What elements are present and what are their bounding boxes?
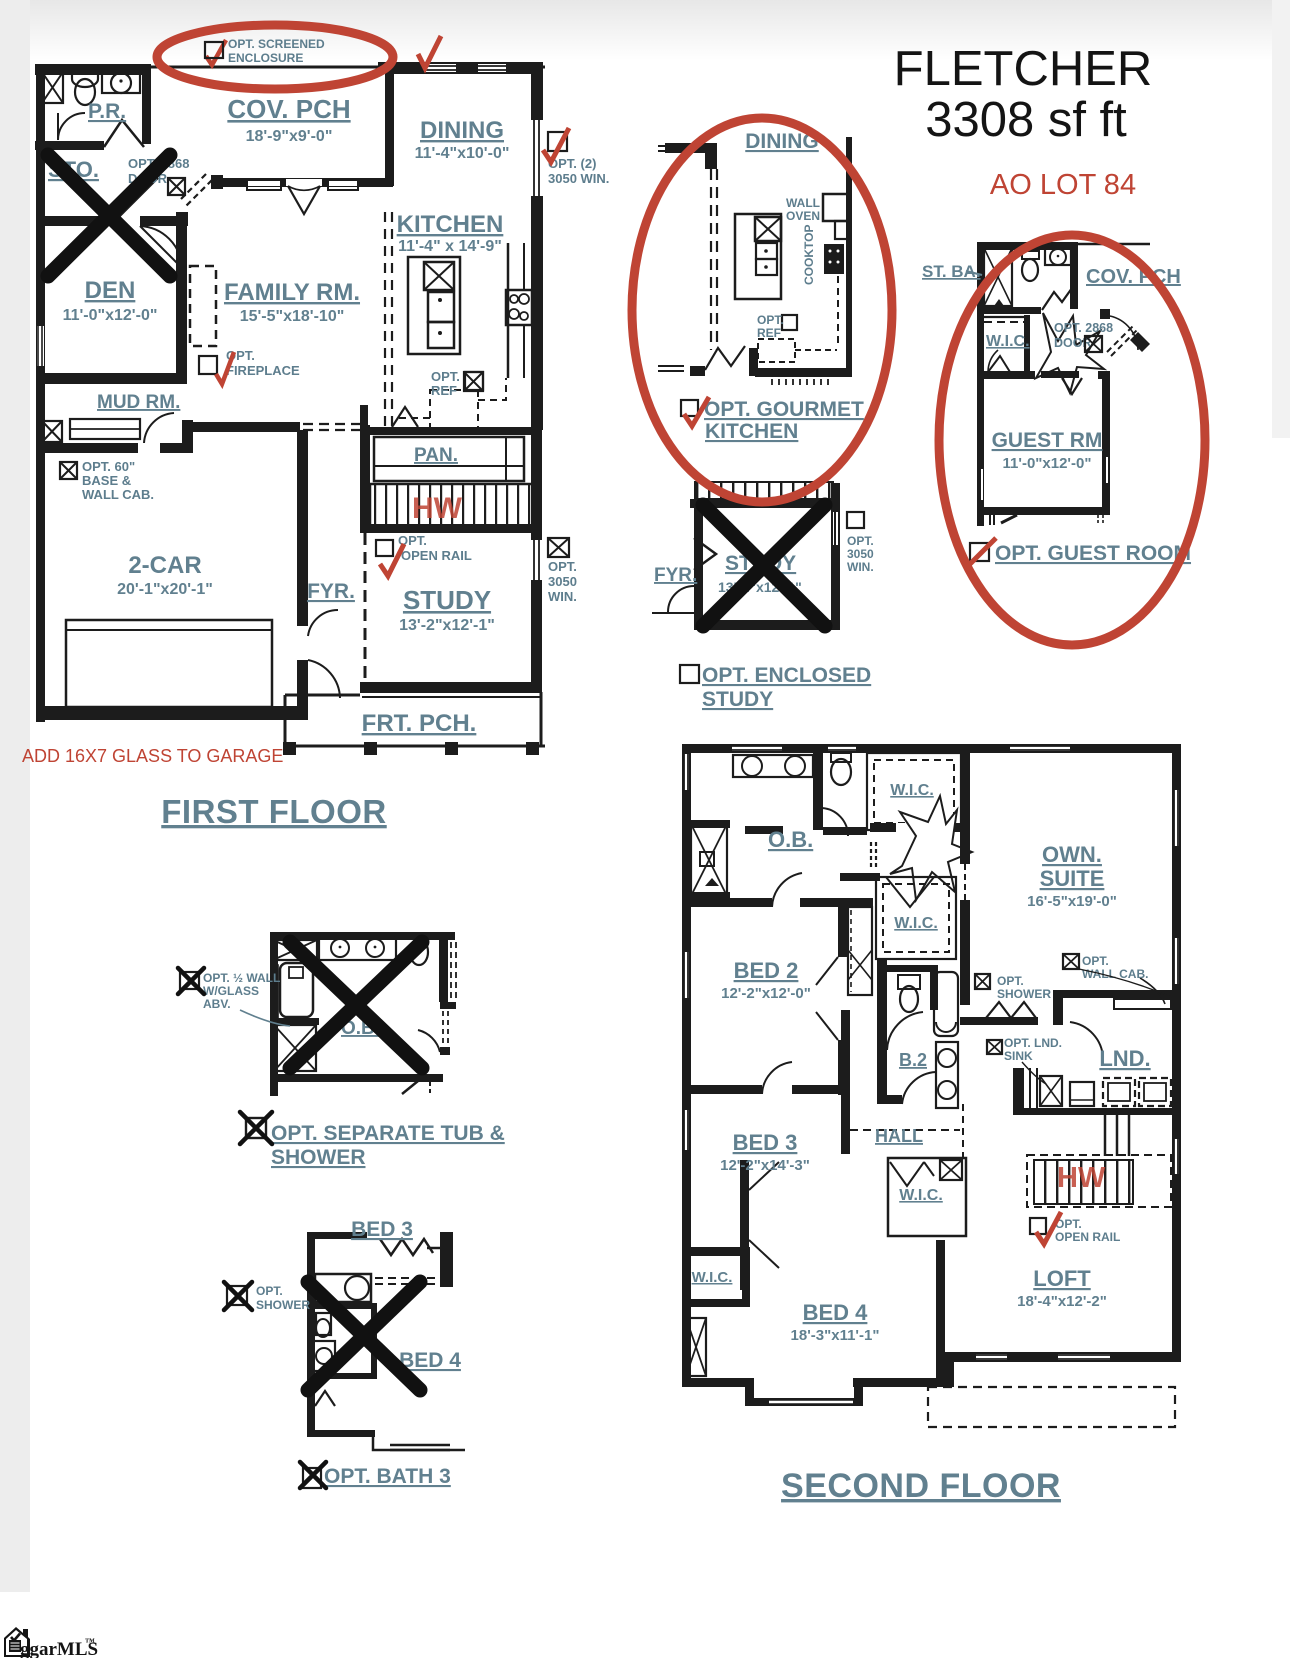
svg-text:DEN: DEN <box>85 277 136 304</box>
svg-text:FYR.: FYR. <box>654 565 697 586</box>
svg-text:W.I.C.: W.I.C. <box>986 333 1030 350</box>
svg-text:REF: REF <box>757 326 781 340</box>
svg-text:COV. PCH: COV. PCH <box>1086 266 1181 288</box>
svg-text:11'-4" x 14'-9": 11'-4" x 14'-9" <box>398 238 502 255</box>
svg-text:OPT.: OPT. <box>1082 954 1109 968</box>
svg-text:OPT. 2868: OPT. 2868 <box>1054 321 1113 335</box>
svg-text:BED 2: BED 2 <box>734 958 799 983</box>
svg-text:SUITE: SUITE <box>1040 866 1105 891</box>
svg-text:STUDY: STUDY <box>702 688 773 711</box>
svg-text:11'-0"x12'-0": 11'-0"x12'-0" <box>1003 455 1092 472</box>
svg-text:SHOWER: SHOWER <box>256 1298 310 1312</box>
svg-text:11'-0"x12'-0": 11'-0"x12'-0" <box>63 307 158 324</box>
svg-text:STUDY: STUDY <box>403 585 491 615</box>
svg-text:FAMILY RM.: FAMILY RM. <box>224 279 360 306</box>
svg-text:WIN.: WIN. <box>847 560 874 574</box>
svg-text:3050: 3050 <box>548 574 577 589</box>
svg-text:12'-2"x14'-3": 12'-2"x14'-3" <box>720 1157 810 1174</box>
svg-text:OPT.: OPT. <box>548 559 577 574</box>
svg-text:LOFT: LOFT <box>1033 1266 1091 1291</box>
svg-text:SHOWER: SHOWER <box>997 987 1051 1001</box>
svg-text:LND.: LND. <box>1099 1046 1150 1071</box>
svg-text:OPEN RAIL: OPEN RAIL <box>1055 1230 1120 1244</box>
svg-text:P.R.: P.R. <box>88 100 126 123</box>
svg-text:OPT. SEPARATE TUB &: OPT. SEPARATE TUB & <box>271 1122 505 1145</box>
svg-text:FIRST FLOOR: FIRST FLOOR <box>161 793 386 830</box>
svg-text:18'-4"x12'-2": 18'-4"x12'-2" <box>1017 1293 1107 1310</box>
svg-text:OPT. BATH 3: OPT. BATH 3 <box>324 1465 451 1488</box>
svg-text:COV. PCH: COV. PCH <box>227 94 350 124</box>
svg-text:HW: HW <box>412 492 463 525</box>
svg-text:BED 4: BED 4 <box>803 1300 869 1325</box>
svg-text:SINK: SINK <box>1004 1049 1033 1063</box>
svg-text:ABV.: ABV. <box>203 997 231 1011</box>
svg-text:™: ™ <box>85 1637 95 1648</box>
svg-text:3050: 3050 <box>847 547 874 561</box>
svg-text:FIREPLACE: FIREPLACE <box>226 363 300 378</box>
svg-text:OPT.: OPT. <box>256 1284 283 1298</box>
svg-text:18'-3"x11'-1": 18'-3"x11'-1" <box>791 1327 880 1344</box>
svg-text:DINING: DINING <box>420 117 504 144</box>
svg-text:OPT. GUEST ROOM: OPT. GUEST ROOM <box>995 542 1191 565</box>
svg-text:OPT. SCREENED: OPT. SCREENED <box>228 37 325 51</box>
svg-text:WALL CAB.: WALL CAB. <box>82 487 154 502</box>
svg-text:ENCLOSURE: ENCLOSURE <box>228 51 303 65</box>
svg-text:OPT. ENCLOSED: OPT. ENCLOSED <box>702 664 871 687</box>
svg-text:HW: HW <box>1057 1162 1106 1194</box>
svg-text:FRT. PCH.: FRT. PCH. <box>362 710 477 737</box>
svg-text:OPT.: OPT. <box>997 974 1024 988</box>
svg-text:KITCHEN: KITCHEN <box>397 211 504 238</box>
svg-text:B.2: B.2 <box>899 1050 927 1070</box>
svg-text:PAN.: PAN. <box>414 445 458 466</box>
svg-text:W.I.C.: W.I.C. <box>692 1269 733 1286</box>
svg-text:OPEN RAIL: OPEN RAIL <box>401 548 472 563</box>
svg-text:OPT.: OPT. <box>431 369 460 384</box>
svg-text:3050 WIN.: 3050 WIN. <box>548 171 609 186</box>
svg-text:OVEN: OVEN <box>786 209 820 223</box>
svg-text:ADD 16X7 GLASS TO GARAGE: ADD 16X7 GLASS TO GARAGE <box>22 746 283 766</box>
svg-text:SHOWER: SHOWER <box>271 1146 366 1169</box>
svg-text:BED 3: BED 3 <box>733 1130 798 1155</box>
svg-text:WIN.: WIN. <box>548 589 577 604</box>
svg-text:OWN.: OWN. <box>1042 842 1102 867</box>
svg-text:HALL: HALL <box>875 1126 923 1146</box>
svg-text:FYR.: FYR. <box>307 580 355 603</box>
svg-text:11'-4"x10'-0": 11'-4"x10'-0" <box>415 145 510 162</box>
svg-text:OPT. LND.: OPT. LND. <box>1004 1036 1062 1050</box>
svg-text:REF: REF <box>431 383 457 398</box>
svg-text:OPT. ½ WALL: OPT. ½ WALL <box>203 971 280 985</box>
svg-text:BED 3: BED 3 <box>351 1218 413 1241</box>
svg-text:W.I.C.: W.I.C. <box>899 1187 943 1204</box>
svg-text:W.I.C.: W.I.C. <box>894 915 938 932</box>
svg-text:13'-2"x12'-1": 13'-2"x12'-1" <box>399 617 495 634</box>
svg-text:OPT.: OPT. <box>757 313 784 327</box>
svg-text:3308 sf ft: 3308 sf ft <box>925 93 1127 147</box>
svg-text:W.I.C.: W.I.C. <box>890 782 934 799</box>
svg-text:OPT. GOURMET: OPT. GOURMET <box>704 398 864 421</box>
svg-text:GUEST RM: GUEST RM <box>992 429 1103 452</box>
svg-text:16'-5"x19'-0": 16'-5"x19'-0" <box>1027 893 1117 910</box>
svg-text:FLETCHER: FLETCHER <box>894 42 1153 96</box>
svg-text:15'-5"x18'-10": 15'-5"x18'-10" <box>240 308 345 325</box>
svg-text:COOKTOP: COOKTOP <box>802 225 816 285</box>
svg-text:W/GLASS: W/GLASS <box>203 984 259 998</box>
svg-text:12'-2"x12'-0": 12'-2"x12'-0" <box>721 985 811 1002</box>
svg-text:BASE &: BASE & <box>82 473 131 488</box>
svg-text:O.B.: O.B. <box>768 827 813 852</box>
svg-text:20'-1"x20'-1": 20'-1"x20'-1" <box>117 581 213 598</box>
svg-text:OPT.: OPT. <box>847 534 874 548</box>
svg-text:MUD RM.: MUD RM. <box>97 392 180 413</box>
svg-text:KITCHEN: KITCHEN <box>705 420 798 443</box>
svg-text:18'-9"x9'-0": 18'-9"x9'-0" <box>246 128 333 145</box>
svg-text:WALL: WALL <box>786 196 820 210</box>
svg-text:2-CAR: 2-CAR <box>128 552 201 579</box>
svg-text:SECOND FLOOR: SECOND FLOOR <box>781 1467 1061 1505</box>
svg-text:OPT. 60": OPT. 60" <box>82 459 135 474</box>
svg-text:WALL CAB.: WALL CAB. <box>1082 967 1148 981</box>
svg-text:AO LOT 84: AO LOT 84 <box>990 169 1136 201</box>
